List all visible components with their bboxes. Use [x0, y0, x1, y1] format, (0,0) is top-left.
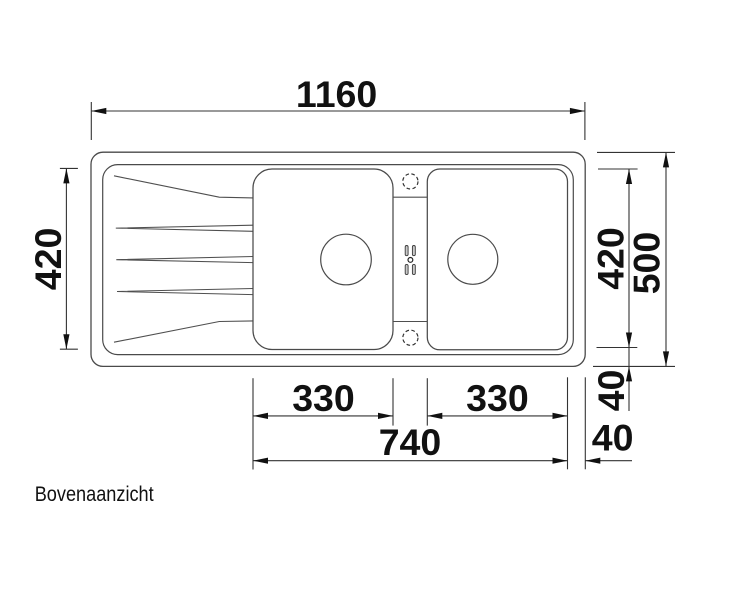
- svg-text:Bovenaanzicht: Bovenaanzicht: [35, 482, 154, 506]
- svg-text:500: 500: [626, 232, 668, 295]
- svg-text:420: 420: [27, 228, 69, 291]
- svg-text:40: 40: [592, 417, 634, 459]
- svg-text:330: 330: [292, 377, 355, 419]
- svg-text:1160: 1160: [296, 73, 377, 115]
- svg-text:330: 330: [466, 377, 529, 419]
- svg-text:40: 40: [590, 370, 632, 412]
- svg-text:740: 740: [379, 421, 442, 463]
